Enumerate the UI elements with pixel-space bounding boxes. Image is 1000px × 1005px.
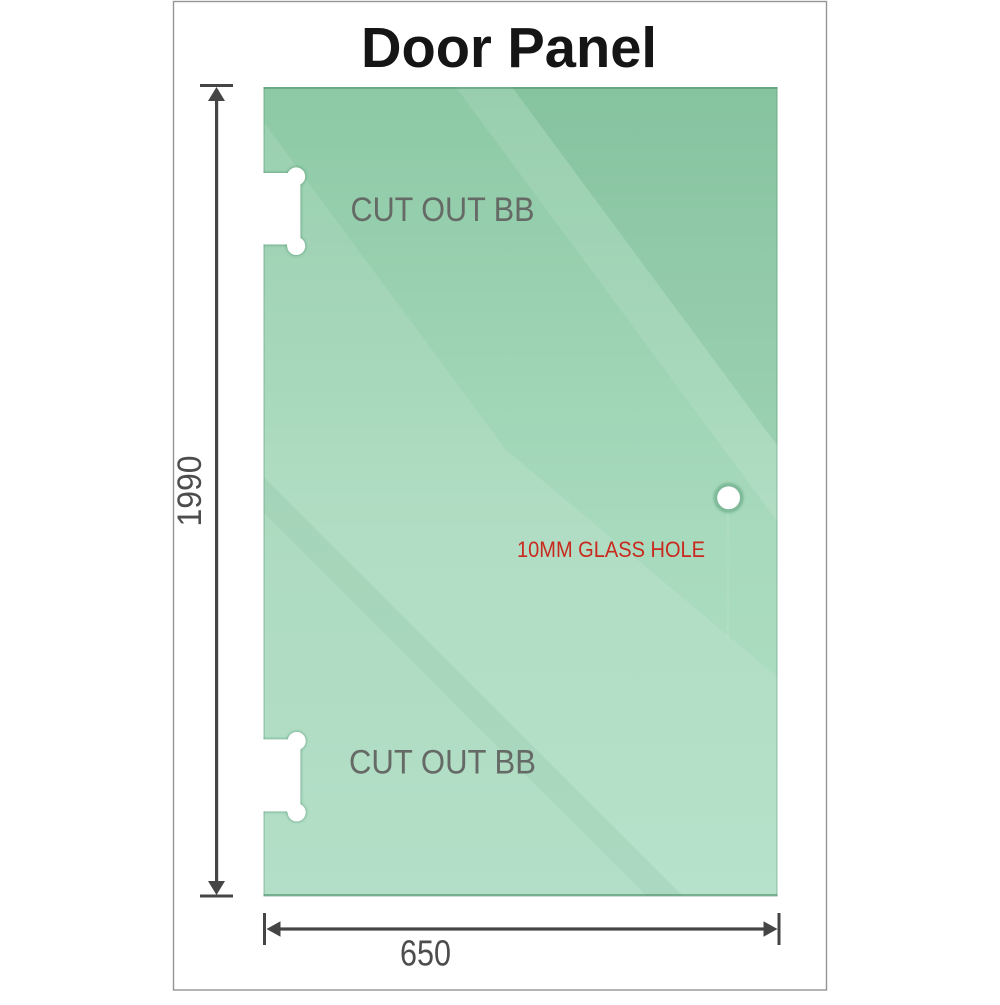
svg-text:CUT OUT BB: CUT OUT BB bbox=[349, 744, 536, 782]
svg-text:650: 650 bbox=[400, 933, 451, 974]
svg-text:1990: 1990 bbox=[171, 456, 209, 527]
svg-text:Door Panel: Door Panel bbox=[361, 16, 657, 80]
svg-text:CUT OUT BB: CUT OUT BB bbox=[351, 191, 535, 229]
svg-text:10MM GLASS HOLE: 10MM GLASS HOLE bbox=[517, 537, 705, 562]
